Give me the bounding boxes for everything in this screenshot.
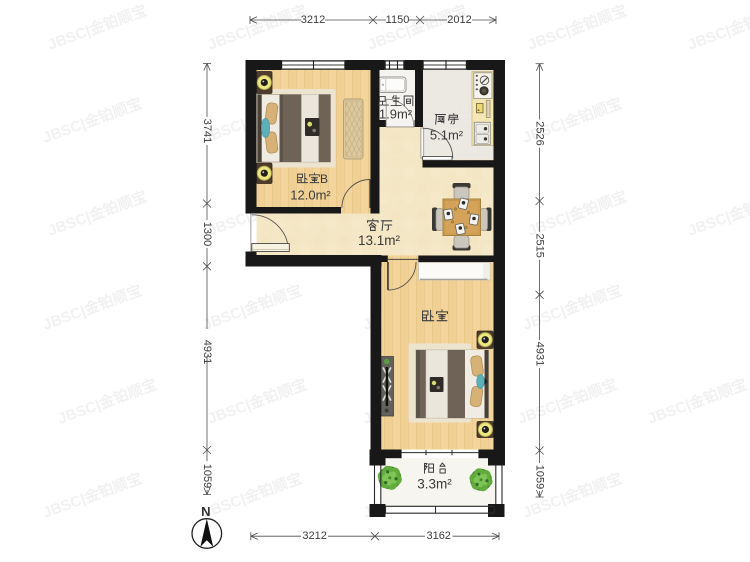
svg-text:4931: 4931 (534, 342, 546, 366)
svg-text:3212: 3212 (302, 530, 326, 542)
svg-text:3.3m²: 3.3m² (417, 476, 452, 491)
svg-text:3741: 3741 (201, 119, 213, 143)
svg-text:12.0m²: 12.0m² (290, 187, 331, 202)
svg-text:2526: 2526 (534, 121, 546, 145)
svg-text:N: N (201, 504, 210, 519)
svg-text:3162: 3162 (426, 530, 450, 542)
svg-text:3212: 3212 (301, 14, 325, 26)
svg-text:1059: 1059 (201, 464, 213, 488)
svg-text:1.9m²: 1.9m² (379, 106, 413, 121)
svg-text:5.1m²: 5.1m² (430, 128, 464, 143)
svg-text:1300: 1300 (201, 222, 213, 246)
svg-text:1059: 1059 (534, 465, 546, 489)
svg-text:1150: 1150 (386, 14, 410, 26)
svg-text:4931: 4931 (201, 340, 213, 364)
svg-text:13.1m²: 13.1m² (358, 233, 401, 248)
svg-text:2515: 2515 (534, 233, 546, 257)
svg-text:2012: 2012 (447, 14, 471, 26)
svg-text:B: B (320, 172, 328, 186)
